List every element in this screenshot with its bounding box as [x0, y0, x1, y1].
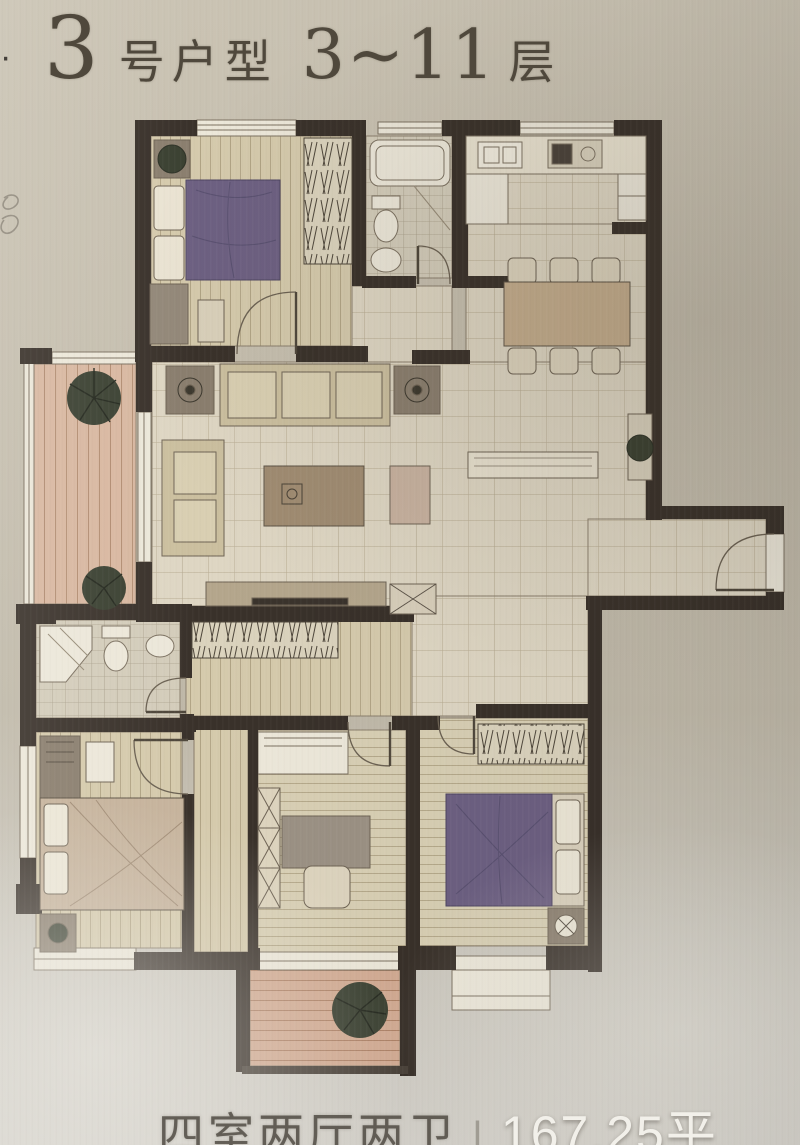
wardrobe — [304, 138, 352, 264]
caption: 四室两厅两卫 | 167.25平 — [0, 1094, 800, 1145]
toilet-tank — [102, 626, 130, 638]
chair — [508, 258, 536, 284]
plant — [48, 923, 68, 943]
shoe-cabinet — [390, 584, 436, 614]
bathtub — [370, 140, 450, 186]
window — [20, 746, 36, 858]
balcony-railing — [52, 352, 136, 364]
ottoman — [390, 466, 430, 524]
chair — [508, 348, 536, 374]
toilet-tank — [372, 196, 400, 209]
chaise-cushion — [174, 500, 216, 542]
chair — [592, 348, 620, 374]
pillow — [154, 236, 184, 280]
plant — [412, 385, 422, 395]
corridor-closet — [192, 622, 338, 658]
dining-table — [504, 282, 630, 346]
pillow — [154, 186, 184, 230]
balcony-slider — [138, 412, 151, 562]
chair — [304, 866, 350, 908]
pillow — [556, 850, 580, 894]
toilet — [104, 641, 128, 671]
toilet — [374, 210, 398, 242]
plant — [158, 145, 186, 173]
chair — [550, 258, 578, 284]
sideboard — [468, 452, 598, 478]
floor-plan-drawing — [0, 0, 800, 1145]
chaise-cushion — [174, 452, 216, 494]
sofa-cushion — [336, 372, 382, 418]
basin — [146, 635, 174, 657]
bay-window — [258, 732, 348, 774]
refrigerator — [618, 174, 646, 220]
bay-window — [452, 956, 550, 1010]
balcony-slider — [258, 952, 402, 970]
balcony-railing — [24, 362, 34, 604]
cooktop-burner — [552, 144, 572, 164]
entry-floor — [588, 519, 766, 596]
hall-south-floor — [412, 596, 588, 716]
double-bed — [186, 180, 280, 280]
cabinet — [258, 788, 280, 908]
floor-plan-photo: · 3 号户型 3~11 层 四室两厅两卫 | 167.25平 — [0, 0, 800, 1145]
pillow — [44, 852, 68, 894]
unit-number: 3 — [44, 6, 99, 92]
window — [197, 120, 296, 136]
sofa-cushion — [228, 372, 276, 418]
pen-smudge — [1, 195, 18, 233]
unit-label: 号户型 — [119, 26, 278, 92]
layout-text: 四室两厅两卫 — [158, 1099, 458, 1145]
balcony-bottom — [332, 982, 388, 1038]
title-bullet: · — [0, 38, 11, 77]
window — [520, 122, 614, 134]
wardrobe — [478, 724, 584, 764]
floor-range: 3~11 — [302, 22, 497, 90]
window — [378, 122, 442, 134]
page-title: 3 号户型 3~11 层 — [44, 6, 555, 92]
sink — [478, 142, 522, 168]
entry-door-opening — [766, 534, 784, 592]
basin — [371, 248, 401, 272]
plant — [627, 435, 653, 461]
wardrobe — [40, 736, 80, 798]
chair — [592, 258, 620, 284]
desk — [282, 816, 370, 868]
bench — [198, 300, 224, 342]
floor-label: 层 — [509, 26, 555, 92]
caption-divider: | — [472, 1113, 483, 1145]
plant — [185, 385, 195, 395]
sofa-cushion — [282, 372, 330, 418]
dresser — [150, 284, 188, 344]
chair — [550, 348, 578, 374]
nightstand — [86, 742, 114, 782]
pillow — [44, 804, 68, 846]
kitchen-cabinet — [466, 174, 508, 224]
tv — [252, 598, 348, 605]
coffee-table — [264, 466, 364, 526]
area-text: 167.25平 — [501, 1094, 718, 1145]
pillow — [556, 800, 580, 844]
hallway-floor — [194, 716, 248, 952]
